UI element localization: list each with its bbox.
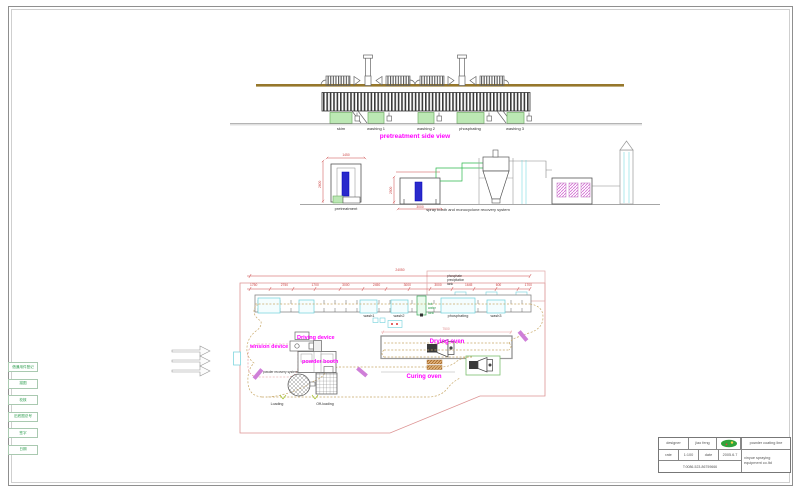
margin-cell: 旧底图总号 <box>8 412 38 422</box>
section-dim-1: 2600 <box>319 181 322 188</box>
title-block: designer jiao feng rate 1:100 date 2005.… <box>658 437 791 473</box>
margin-cell: 校核 <box>8 395 38 405</box>
hanger-magenta-2 <box>253 368 264 380</box>
section-dim-4: 3000 <box>416 206 423 209</box>
title-block-right-column: powder coating line xinyue spraying equi… <box>741 438 790 472</box>
tank-label-phosphating: phosphating <box>459 127 481 131</box>
plan-view-drawing <box>172 271 545 433</box>
tank-label-skim: skim <box>337 127 345 131</box>
legend-box <box>388 321 402 328</box>
section-dim-2: 1450 <box>342 154 349 157</box>
pretreatment-section-label: pretreatment <box>335 207 358 211</box>
overall-dimension: 24050 <box>395 269 404 272</box>
powder-recovery-label: powder recovery system <box>263 370 298 374</box>
exhaust-fan-unit-1 <box>321 55 415 86</box>
tank-label-washing2: washing 2 <box>417 127 435 131</box>
recovery-cyclone-top <box>288 374 310 396</box>
plan-dimension-row: 175027501700300024503000300016456001700 <box>250 284 532 287</box>
company-name: xinyue spraying equipment co.ltd <box>742 450 790 472</box>
rate-value: 1:100 <box>679 450 699 461</box>
pretreatment-section <box>322 157 366 203</box>
margin-cell: 借通用件登记 <box>8 362 38 372</box>
margin-cell: 描图 <box>8 379 38 389</box>
tank-label-washing1: washing 1 <box>367 127 385 131</box>
exhaust-fan-unit-2 <box>415 55 509 86</box>
reciprocator <box>314 341 322 352</box>
plan-tank-wash3: wash3 <box>491 315 502 319</box>
drying-oven-label: Drying oven <box>430 339 465 345</box>
conveyor-hatched-band <box>322 93 530 112</box>
date-label: date <box>699 450 719 461</box>
drawing-sheet: skim washing 1 washing 2 phosphating was… <box>0 0 800 493</box>
company-logo <box>717 438 741 449</box>
designer-value: jiao feng <box>689 438 717 449</box>
hanger-magenta-1 <box>518 330 529 342</box>
section-dim-3: 2500 <box>390 187 393 194</box>
phone-number: T:0086-523-86759666 <box>659 461 741 473</box>
phosphate-tank-label: phosphate precipitation tank <box>447 274 464 287</box>
title-block-row3: T:0086-523-86759666 <box>659 461 741 473</box>
spray-system-label: spray booth and monocyclone recovery sys… <box>426 208 510 212</box>
cyclone-cone <box>483 171 509 199</box>
section-view-drawing <box>300 141 660 210</box>
wall-unit-cyan <box>234 352 241 365</box>
side-view-title: pretreatment side view <box>380 134 450 141</box>
drying-burner <box>427 344 437 353</box>
product-name: powder coating line <box>742 438 790 450</box>
workpiece-blue <box>342 172 349 196</box>
tank-label-washing3: washing 3 <box>506 127 524 131</box>
plan-tank-phosphating: phosphating <box>448 315 469 319</box>
stack-arrow <box>620 141 633 150</box>
plan-tank-wash2: wash2 <box>394 315 405 319</box>
margin-cell: 日期 <box>8 445 38 455</box>
designer-label: designer <box>659 438 689 449</box>
flow-arrows <box>172 346 210 376</box>
tension-device-label: tension device <box>250 345 288 351</box>
logo-icon <box>719 439 739 448</box>
title-block-row2: rate 1:100 date 2005.6.7 <box>659 450 741 462</box>
date-value: 2005.6.7 <box>719 450 741 461</box>
hot-water-tank-plan <box>417 296 426 315</box>
recovery-filter-top <box>316 373 337 394</box>
hot-water-tank-label: hot water tank <box>428 302 436 315</box>
plan-tank-wash1: wash1 <box>364 315 375 319</box>
side-view-drawing <box>230 55 642 125</box>
dimension-lines <box>247 276 530 289</box>
spray-booth-section <box>393 141 633 210</box>
offloading-label: Off-loading <box>316 403 334 407</box>
rate-label: rate <box>659 450 679 461</box>
margin-strip: 借通用件登记 描图 校核 旧底图总号 签字 日期 <box>8 362 38 461</box>
loading-label: Loading <box>271 403 284 407</box>
hanger-magenta-3 <box>356 367 368 378</box>
exhaust-stack <box>620 150 633 204</box>
oven-dimension: 7500 <box>442 328 449 331</box>
curing-oven-label: Curing oven <box>406 374 441 380</box>
margin-cell: 签字 <box>8 428 38 438</box>
powder-booth-label: powder booth <box>302 360 338 366</box>
cad-drawing-canvas <box>0 0 800 493</box>
driving-device-label: Driving device <box>297 336 335 342</box>
